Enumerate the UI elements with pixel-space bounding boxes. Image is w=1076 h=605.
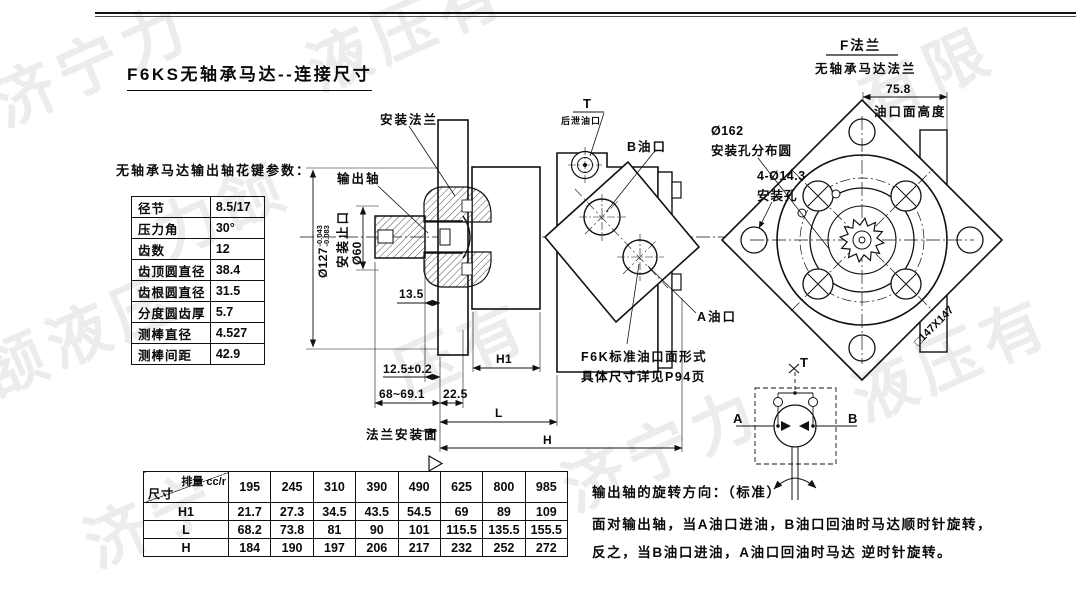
spline-param-label: 压力角 xyxy=(132,218,211,239)
disp-table-corner-cell: 排量 cc/r 尺寸 xyxy=(144,472,229,503)
spline-param-value: 4.527 xyxy=(210,323,264,344)
disp-cell: 252 xyxy=(483,539,525,557)
b-port-label: B油口 xyxy=(627,136,667,155)
dim-68-69: 68~69.1 xyxy=(379,387,425,401)
spline-row: 测棒间距42.9 xyxy=(132,344,265,365)
spline-param-value: 42.9 xyxy=(210,344,264,365)
mount-holes-sub-label: 安装孔 xyxy=(757,185,798,204)
corner-label-dimension: 尺寸 xyxy=(148,485,174,502)
disp-cell: 206 xyxy=(356,539,398,557)
port-face-note-line2: 具体尺寸详见P94页 xyxy=(581,366,706,385)
spline-row: 齿根圆直径31.5 xyxy=(132,281,265,302)
schematic-port-b-label: B xyxy=(848,411,858,426)
dim-75-8: 75.8 xyxy=(886,82,911,96)
spline-table-caption: 无轴承马达输出轴花键参数： xyxy=(116,160,311,179)
bolt-circle-dia-label: Ø162 xyxy=(711,124,744,138)
schematic-port-a-label: A xyxy=(733,411,743,426)
spline-param-value: 12 xyxy=(210,239,264,260)
dim-h1: H1 xyxy=(496,352,512,366)
output-shaft-label: 输出轴 xyxy=(337,168,381,187)
spline-param-value: 38.4 xyxy=(210,260,264,281)
disp-cell: 68.2 xyxy=(229,521,271,539)
spline-param-value: 5.7 xyxy=(210,302,264,323)
rotation-note-line3: 反之，当B油口进油，A油口回油时马达 逆时针旋转。 xyxy=(592,541,952,561)
pilot-diameter-label: Ø127-0.043-0.083 xyxy=(314,225,332,278)
disp-row-label: H xyxy=(144,539,229,557)
disp-row: L68.273.88190101115.5135.5155.5 xyxy=(144,521,568,539)
dim-l: L xyxy=(495,406,503,420)
datasheet-page: F6KS无轴承马达--连接尺寸 无轴承马达输出轴花键参数： 径节8.5/17压力… xyxy=(0,0,1076,605)
disp-col-header: 245 xyxy=(271,472,313,503)
mount-holes-label: 4-Ø14.3 xyxy=(757,169,806,183)
dia127-value: Ø127 xyxy=(316,247,330,278)
spline-param-value: 8.5/17 xyxy=(210,197,264,218)
disp-col-header: 625 xyxy=(440,472,482,503)
spline-param-label: 齿顶圆直径 xyxy=(132,260,211,281)
dim-12-5: 12.5±0.2 xyxy=(383,362,432,376)
disp-row: H184190197206217232252272 xyxy=(144,539,568,557)
spline-param-label: 齿数 xyxy=(132,239,211,260)
disp-cell: 101 xyxy=(398,521,440,539)
disp-cell: 43.5 xyxy=(356,503,398,521)
rotation-note-line1: 输出轴的旋转方向：（标准） xyxy=(592,481,782,501)
dia60-label: Ø60 xyxy=(350,241,364,265)
disp-row-label: L xyxy=(144,521,229,539)
port-face-note-line1: F6K标准油口面形式 xyxy=(581,346,707,365)
disp-cell: 184 xyxy=(229,539,271,557)
disp-cell: 27.3 xyxy=(271,503,313,521)
spline-row: 分度圆齿厚5.7 xyxy=(132,302,265,323)
rotation-note-line2: 面对输出轴，当A油口进油，B油口回油时马达顺时针旋转， xyxy=(592,513,992,533)
corner-label-displacement: 排量 cc/r xyxy=(181,473,226,489)
spline-param-label: 分度圆齿厚 xyxy=(132,302,211,323)
spline-param-label: 径节 xyxy=(132,197,211,218)
disp-cell: 109 xyxy=(525,503,567,521)
disp-cell: 135.5 xyxy=(483,521,525,539)
hydraulic-schematic xyxy=(736,364,857,500)
disp-cell: 115.5 xyxy=(440,521,482,539)
side-view-drawing xyxy=(300,112,782,471)
disp-cell: 272 xyxy=(525,539,567,557)
bolt-circle-label: 安装孔分布圆 xyxy=(711,140,792,159)
flange-face-label: 法兰安装面 xyxy=(366,424,439,443)
disp-cell: 81 xyxy=(313,521,355,539)
spline-param-value: 30° xyxy=(210,218,264,239)
spline-row: 齿顶圆直径38.4 xyxy=(132,260,265,281)
dia127-tol-lower: -0.083 xyxy=(323,225,330,246)
pilot-label: 安装止口 xyxy=(332,210,351,268)
disp-cell: 197 xyxy=(313,539,355,557)
disp-col-header: 195 xyxy=(229,472,271,503)
disp-col-header: 490 xyxy=(398,472,440,503)
disp-col-header: 800 xyxy=(483,472,525,503)
spline-param-label: 测棒间距 xyxy=(132,344,211,365)
spline-row: 齿数12 xyxy=(132,239,265,260)
spline-row: 压力角30° xyxy=(132,218,265,239)
disp-col-header: 390 xyxy=(356,472,398,503)
disp-col-header: 985 xyxy=(525,472,567,503)
spline-param-label: 齿根圆直径 xyxy=(132,281,211,302)
disp-row-label: H1 xyxy=(144,503,229,521)
disp-cell: 217 xyxy=(398,539,440,557)
flange-view-title: F法兰 xyxy=(840,34,881,54)
flange-view-subtitle: 无轴承马达法兰 xyxy=(815,58,917,77)
flange-view-drawing xyxy=(722,55,1002,380)
disp-cell: 54.5 xyxy=(398,503,440,521)
disp-cell: 34.5 xyxy=(313,503,355,521)
dia127-tolerance: -0.043-0.083 xyxy=(316,225,330,246)
disp-cell: 21.7 xyxy=(229,503,271,521)
t-port-label: T xyxy=(583,96,591,111)
disp-cell: 90 xyxy=(356,521,398,539)
dim-13-5: 13.5 xyxy=(399,287,424,301)
spline-row: 测棒直径4.527 xyxy=(132,323,265,344)
schematic-port-t-label: T xyxy=(800,355,808,370)
disp-cell: 232 xyxy=(440,539,482,557)
disp-cell: 89 xyxy=(483,503,525,521)
t-port-note-label: 后泄油口 xyxy=(561,114,601,127)
spline-param-label: 测棒直径 xyxy=(132,323,211,344)
mounting-flange-label: 安装法兰 xyxy=(380,109,438,128)
page-title: F6KS无轴承马达--连接尺寸 xyxy=(127,60,372,91)
disp-row: H121.727.334.543.554.56989109 xyxy=(144,503,568,521)
disp-cell: 73.8 xyxy=(271,521,313,539)
disp-cell: 190 xyxy=(271,539,313,557)
port-face-height-label: 油口面高度 xyxy=(874,101,947,120)
a-port-label: A油口 xyxy=(697,306,737,325)
disp-col-header: 310 xyxy=(313,472,355,503)
disp-cell: 155.5 xyxy=(525,521,567,539)
spline-row: 径节8.5/17 xyxy=(132,197,265,218)
disp-cell: 69 xyxy=(440,503,482,521)
dim-22-5: 22.5 xyxy=(443,387,468,401)
spline-param-value: 31.5 xyxy=(210,281,264,302)
spline-parameters-table: 径节8.5/17压力角30°齿数12齿顶圆直径38.4齿根圆直径31.5分度圆齿… xyxy=(131,196,265,365)
displacement-dimensions-table: 排量 cc/r 尺寸 195245310390490625800985 H121… xyxy=(143,471,568,557)
dim-h: H xyxy=(543,433,552,447)
